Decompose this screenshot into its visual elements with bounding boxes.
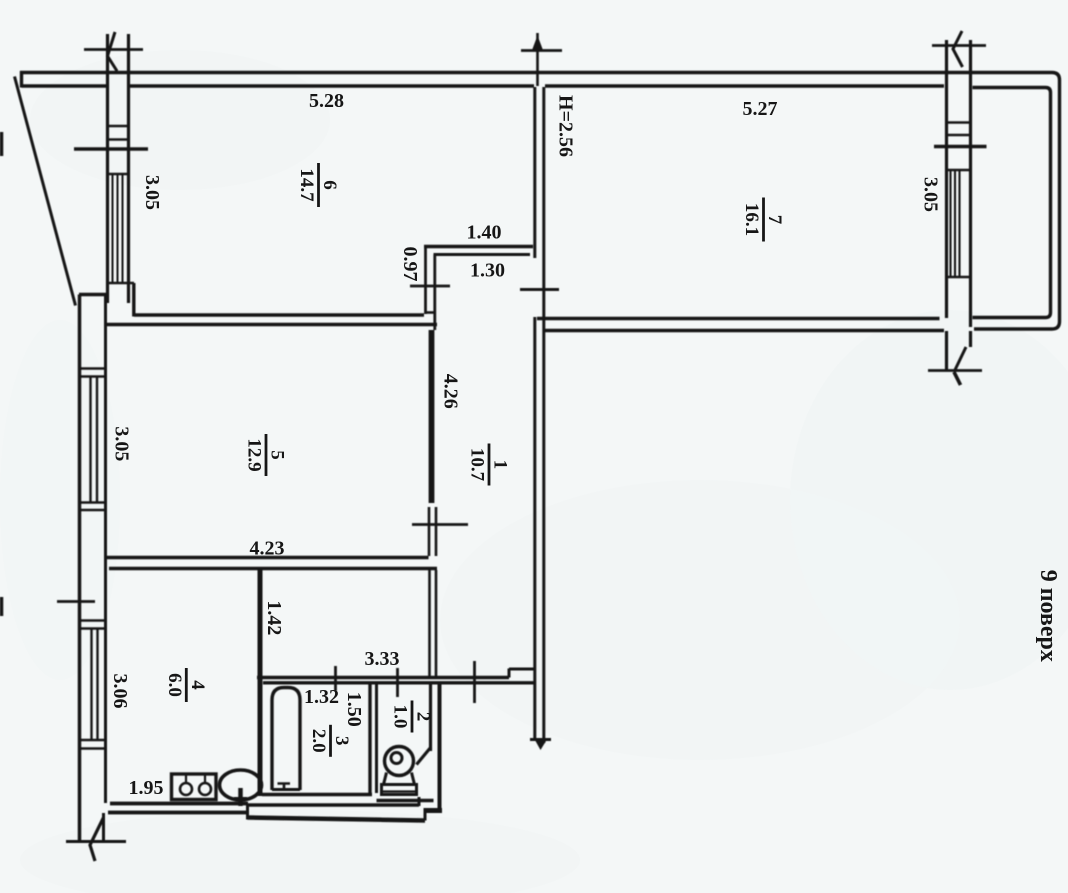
- svg-text:4.23: 4.23: [250, 538, 285, 560]
- svg-text:0.97: 0.97: [399, 247, 421, 282]
- svg-text:12.9: 12.9: [244, 438, 265, 471]
- svg-text:3.33: 3.33: [365, 648, 400, 670]
- svg-text:5: 5: [267, 450, 288, 460]
- svg-text:1.32: 1.32: [304, 686, 339, 708]
- svg-text:16.1: 16.1: [741, 203, 762, 236]
- svg-text:5.28: 5.28: [309, 90, 344, 112]
- svg-text:9 поверх: 9 поверх: [1035, 570, 1061, 662]
- svg-text:3.05: 3.05: [110, 426, 132, 461]
- svg-text:4: 4: [187, 680, 208, 690]
- svg-text:1.40: 1.40: [467, 222, 502, 244]
- svg-text:3.05: 3.05: [141, 175, 163, 210]
- svg-text:H=2.56: H=2.56: [555, 95, 577, 157]
- svg-text:3.06: 3.06: [109, 674, 131, 709]
- svg-text:4.26: 4.26: [439, 374, 461, 409]
- svg-text:1.50: 1.50: [343, 692, 365, 727]
- svg-text:7: 7: [764, 215, 785, 225]
- svg-text:6: 6: [319, 180, 340, 190]
- svg-text:6.0: 6.0: [164, 673, 185, 697]
- svg-text:2.0: 2.0: [308, 729, 329, 753]
- svg-text:3: 3: [331, 736, 352, 746]
- svg-text:1.0: 1.0: [390, 705, 411, 729]
- svg-text:2: 2: [413, 712, 434, 722]
- svg-text:3.05: 3.05: [920, 177, 942, 212]
- svg-text:1.42: 1.42: [263, 600, 285, 635]
- svg-text:1.30: 1.30: [470, 260, 505, 282]
- svg-text:1: 1: [490, 460, 511, 470]
- svg-text:5.27: 5.27: [743, 98, 778, 120]
- svg-text:10.7: 10.7: [467, 448, 488, 482]
- svg-text:14.7: 14.7: [296, 168, 317, 202]
- svg-text:1.95: 1.95: [129, 777, 164, 799]
